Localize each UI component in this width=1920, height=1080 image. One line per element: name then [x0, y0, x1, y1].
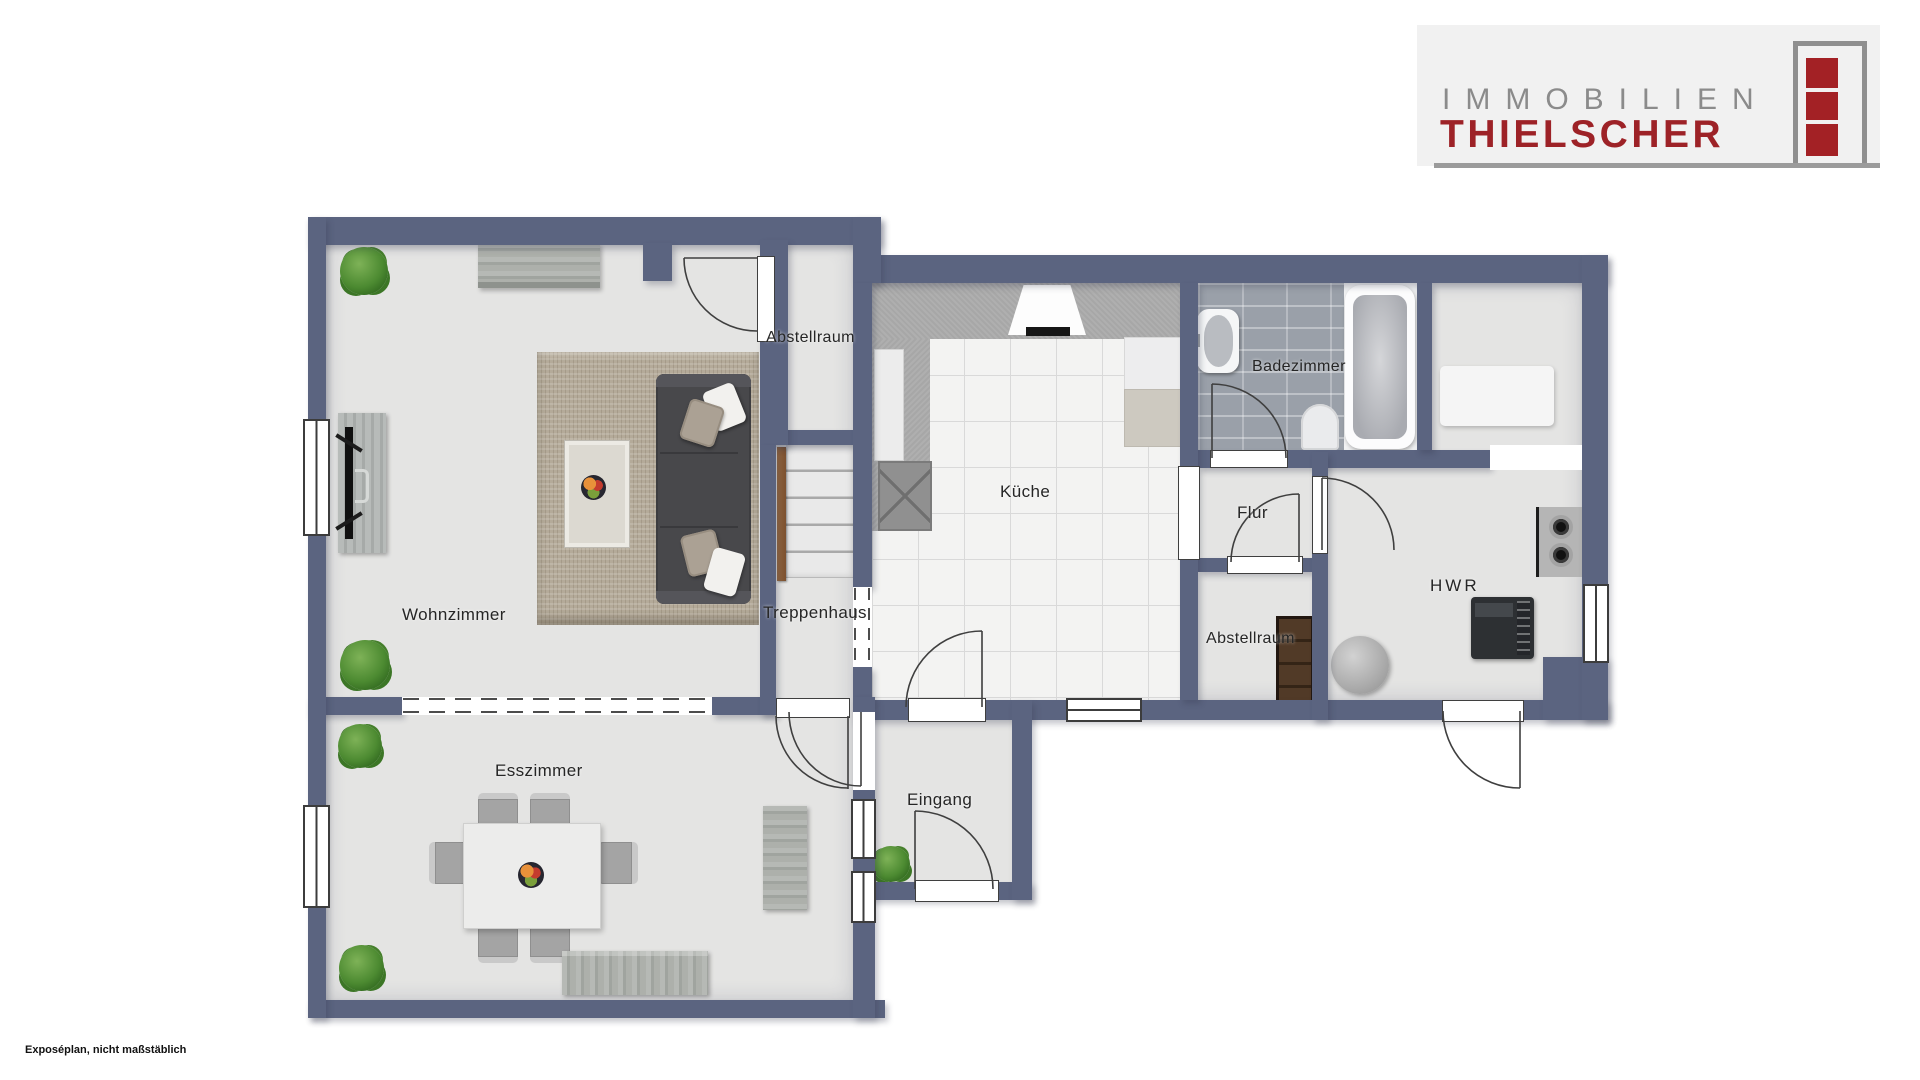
disclaimer-note: Exposéplan, nicht maßstäblich: [25, 1044, 186, 1056]
room-label-abstellraum-unten: Abstellraum: [1206, 630, 1295, 648]
room-label-esszimmer: Esszimmer: [495, 761, 583, 781]
door-swing-hwr: [1322, 478, 1394, 550]
logo-red-square: [1806, 58, 1838, 88]
door-swing-esszimmer-eingang: [789, 712, 861, 786]
room-label-eingang: Eingang: [907, 790, 972, 810]
logo-text-thielscher: THIELSCHER: [1440, 113, 1724, 157]
room-label-abstellraum-oben: Abstellraum: [766, 329, 855, 347]
logo-building-icon: [1793, 41, 1867, 163]
room-label-badezimmer: Badezimmer: [1252, 358, 1346, 376]
room-label-wohnzimmer: Wohnzimmer: [402, 605, 506, 625]
door-swing-treppenhaus: [776, 716, 848, 789]
door-swing-hwr-aussen: [1443, 711, 1520, 788]
logo-text-immobilien: IMMOBILIEN: [1442, 83, 1769, 117]
company-logo: IMMOBILIEN THIELSCHER: [1417, 25, 1880, 166]
room-label-hwr: HWR: [1430, 576, 1480, 596]
dashed-opening-line: [403, 699, 711, 712]
dashed-opening-line: [855, 588, 869, 666]
logo-underline: [1434, 163, 1880, 168]
door-swing-abstellraum-oben: [684, 258, 757, 331]
door-swing-kueche: [906, 631, 982, 707]
room-label-treppenhaus: Treppenhaus: [763, 603, 867, 623]
door-swing-haustuer: [915, 811, 993, 889]
logo-red-square: [1806, 92, 1838, 120]
room-label-kueche: Küche: [1000, 482, 1050, 502]
floorplan-page: { "header_logo": { "brand_top": "IMMOBIL…: [0, 0, 1920, 1080]
logo-red-square: [1806, 124, 1838, 156]
door-swing-badezimmer: [1212, 384, 1286, 458]
room-label-flur: Flur: [1237, 503, 1268, 523]
